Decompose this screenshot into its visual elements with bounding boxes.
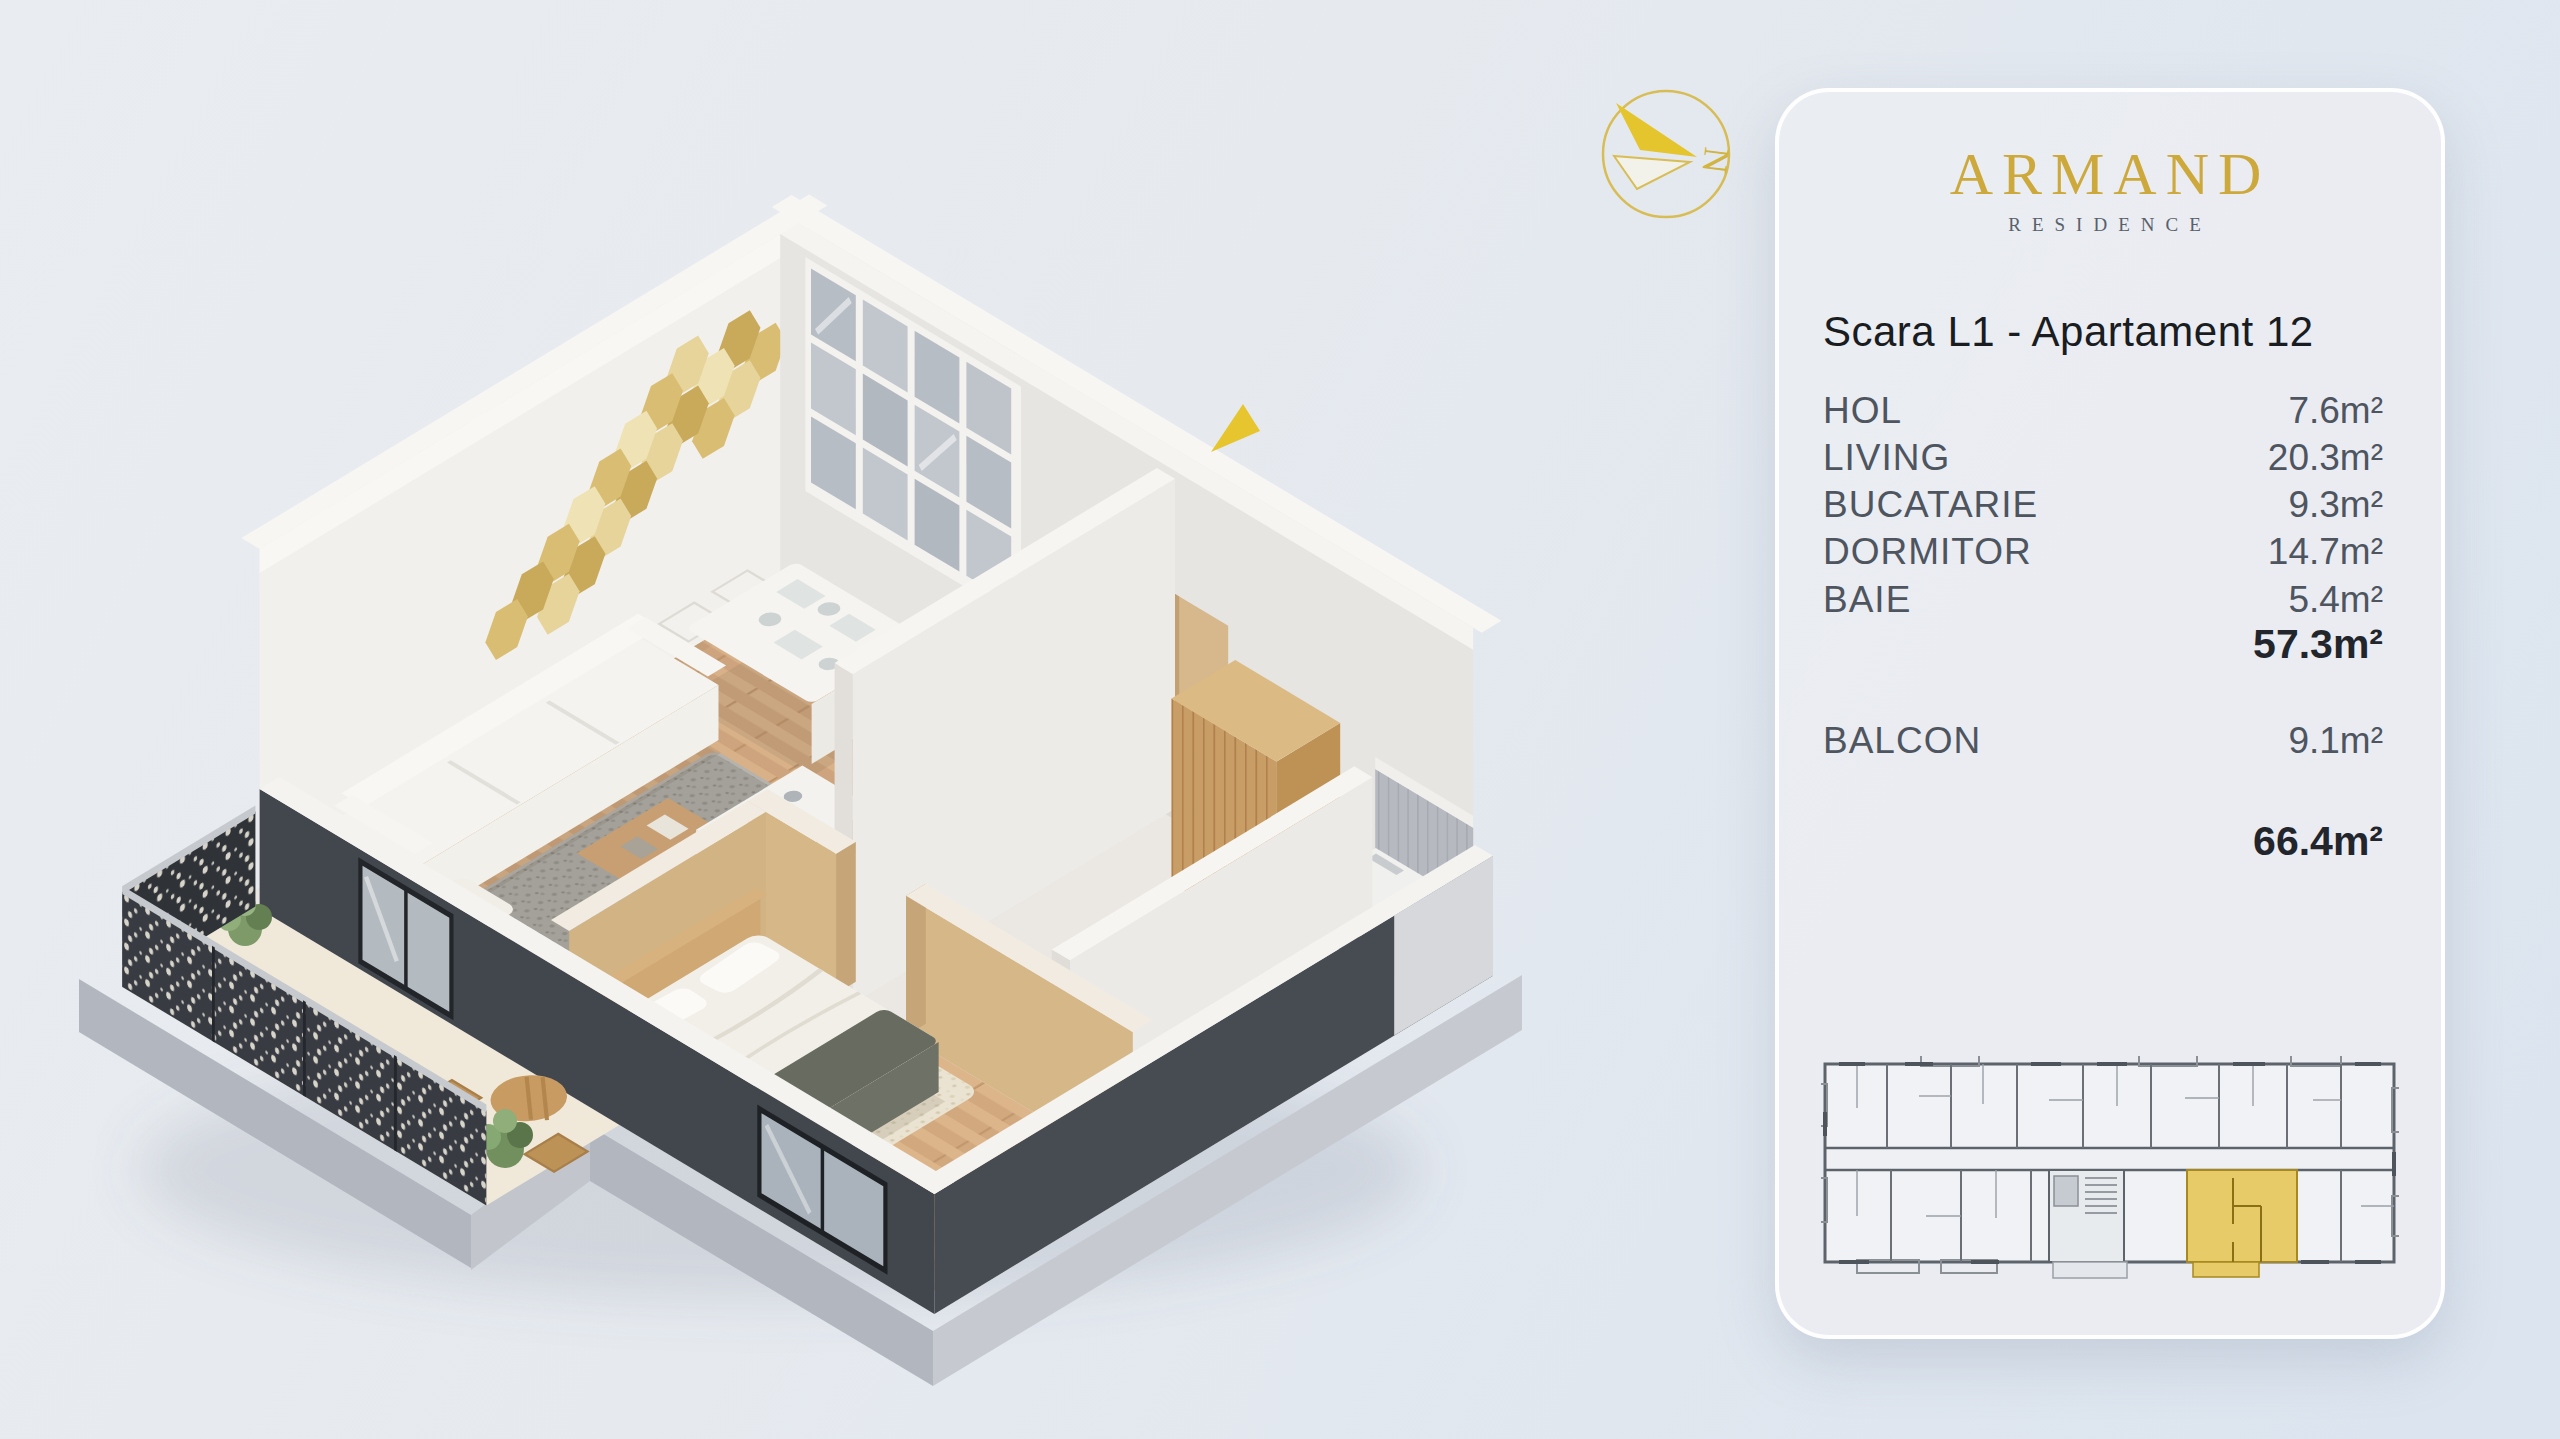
compass-icon: N (1603, 91, 1737, 217)
room-label: LIVING (1823, 437, 1950, 479)
page: N ARMAND RESIDENCE Scara L1 - Apartament… (0, 0, 2560, 1439)
apartment-marker-icon (1211, 404, 1260, 452)
room-label: HOL (1823, 390, 1902, 432)
room-area: 20.3m² (2268, 437, 2383, 479)
room-row: BUCATARIE 9.3m² (1823, 484, 2383, 528)
north-letter: N (1694, 145, 1737, 176)
room-label: BUCATARIE (1823, 484, 2038, 526)
room-row: HOL 7.6m² (1823, 390, 2383, 434)
subtotal-area: 57.3m² (2253, 621, 2383, 668)
room-label: BALCON (1823, 720, 1981, 762)
brand-logo: ARMAND (1779, 140, 2441, 209)
brand-subtitle: RESIDENCE (1779, 214, 2441, 236)
room-area: 7.6m² (2288, 390, 2383, 432)
minimap-stairwell (2049, 1170, 2127, 1278)
minimap-highlight-unit (2187, 1170, 2297, 1277)
total-area: 66.4m² (2253, 818, 2383, 865)
room-label: DORMITOR (1823, 531, 2032, 573)
room-row: BAIE 5.4m² (1823, 579, 2383, 623)
total-row: 66.4m² (1823, 818, 2383, 862)
room-row: LIVING 20.3m² (1823, 437, 2383, 481)
minimap-building (1821, 1056, 2399, 1278)
room-label: BAIE (1823, 579, 1911, 621)
balcony-row: BALCON 9.1m² (1823, 720, 2383, 764)
room-area: 9.3m² (2288, 484, 2383, 526)
room-area: 9.1m² (2288, 720, 2383, 762)
floor-minimap (1821, 1056, 2399, 1292)
room-row: DORMITOR 14.7m² (1823, 531, 2383, 575)
interior-subtotal-row: 57.3m² (1823, 621, 2383, 665)
info-card: ARMAND RESIDENCE Scara L1 - Apartament 1… (1775, 88, 2445, 1339)
room-area: 14.7m² (2268, 531, 2383, 573)
room-area: 5.4m² (2288, 579, 2383, 621)
apartment-title: Scara L1 - Apartament 12 (1823, 308, 2314, 356)
